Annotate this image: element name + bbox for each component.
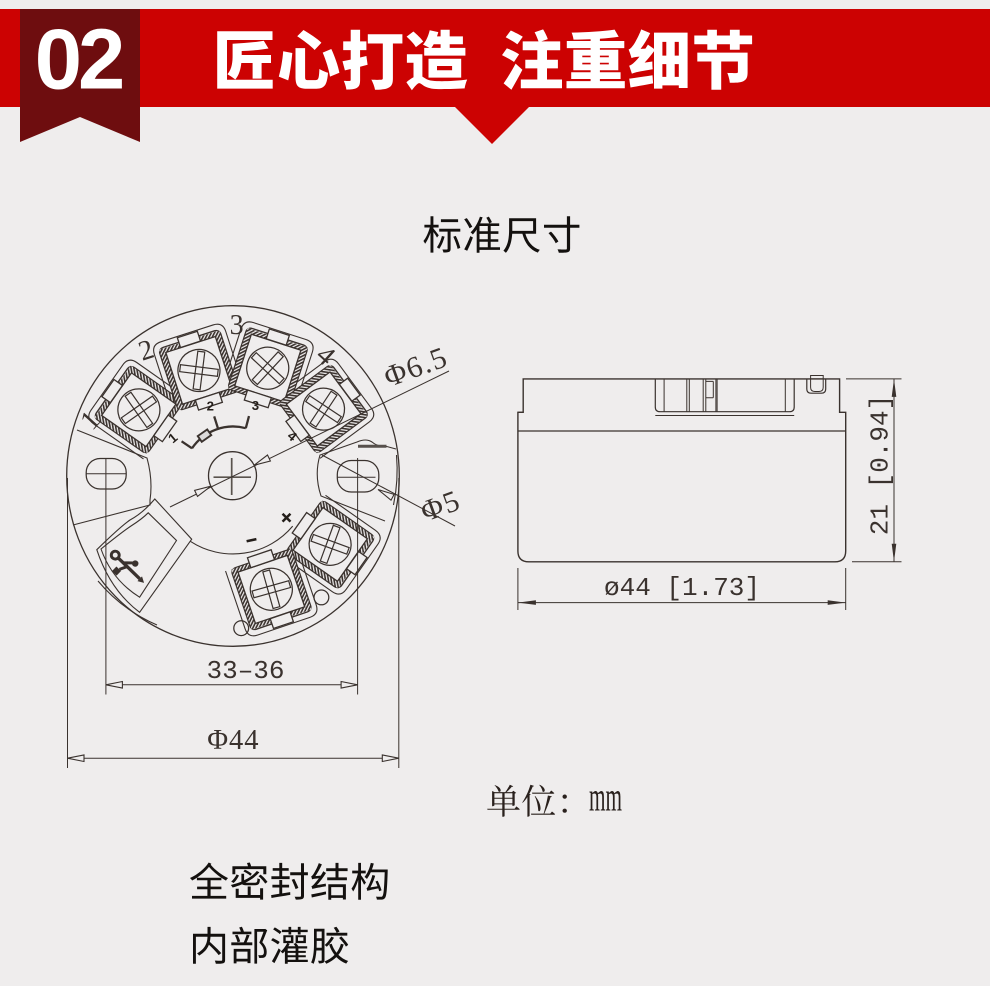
svg-text:2: 2 (135, 334, 158, 368)
svg-text:Φ6.5: Φ6.5 (380, 340, 453, 393)
svg-text:3: 3 (230, 310, 244, 341)
svg-text:Φ5: Φ5 (416, 484, 465, 529)
svg-text:1: 1 (165, 430, 180, 446)
svg-text:33–36: 33–36 (206, 656, 284, 686)
svg-text:mm: mm (589, 774, 622, 820)
svg-text:2: 2 (207, 399, 214, 414)
svg-text:ø44 [1.73]: ø44 [1.73] (604, 573, 760, 603)
svg-text:Φ44: Φ44 (207, 725, 259, 756)
svg-text:21 [0.94]: 21 [0.94] (866, 395, 896, 535)
svg-text:3: 3 (252, 398, 259, 413)
svg-text:4: 4 (310, 339, 341, 371)
